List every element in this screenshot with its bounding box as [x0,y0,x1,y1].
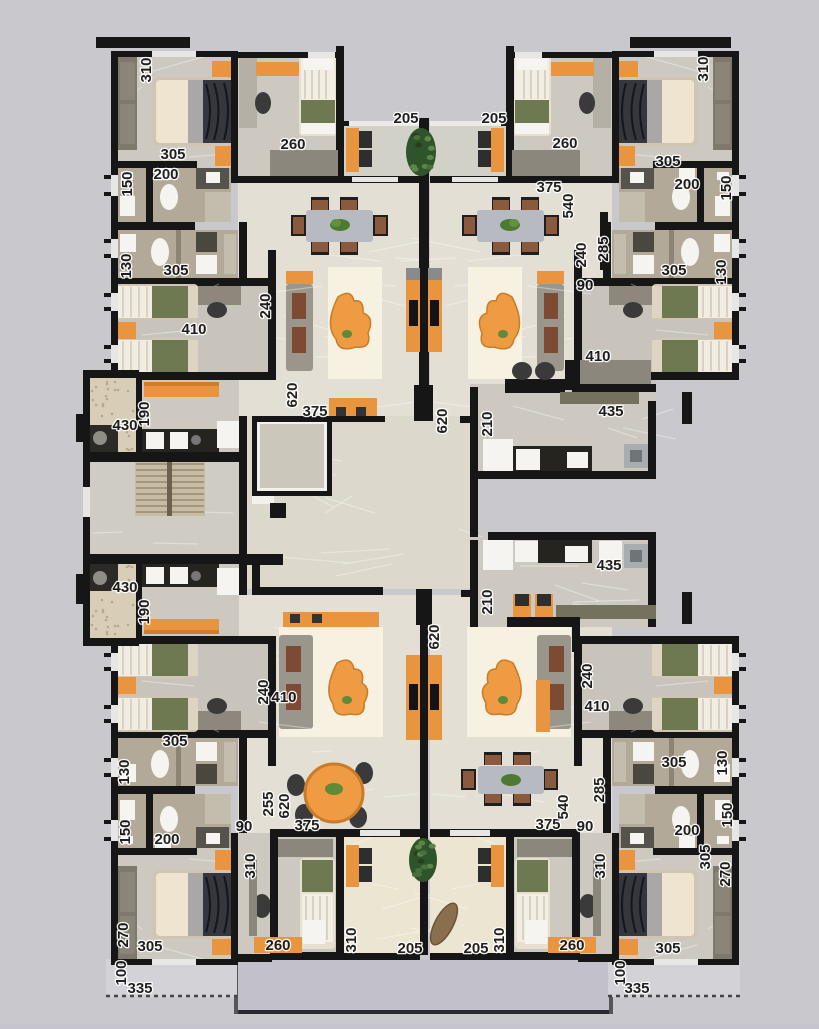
svg-text:150: 150 [719,802,736,827]
svg-text:305: 305 [655,153,680,170]
svg-text:310: 310 [343,927,360,952]
svg-text:305: 305 [160,146,185,163]
svg-text:200: 200 [154,831,179,848]
svg-text:305: 305 [661,754,686,771]
svg-text:270: 270 [115,922,132,947]
svg-text:240: 240 [257,293,274,318]
svg-text:435: 435 [598,403,623,420]
svg-text:305: 305 [661,262,686,279]
svg-text:200: 200 [674,176,699,193]
svg-text:410: 410 [271,689,296,706]
svg-text:430: 430 [112,579,137,596]
svg-text:375: 375 [302,403,327,420]
svg-text:130: 130 [118,253,135,278]
svg-text:90: 90 [236,818,253,835]
svg-text:310: 310 [138,57,155,82]
svg-text:335: 335 [624,980,649,997]
svg-text:255: 255 [260,791,277,816]
svg-text:375: 375 [294,817,319,834]
svg-text:540: 540 [555,794,572,819]
svg-text:205: 205 [397,940,422,957]
svg-text:285: 285 [595,236,612,261]
svg-text:435: 435 [596,557,621,574]
svg-text:620: 620 [434,408,451,433]
svg-text:310: 310 [491,927,508,952]
svg-text:210: 210 [479,411,496,436]
svg-text:270: 270 [717,861,734,886]
svg-text:410: 410 [584,698,609,715]
svg-text:260: 260 [280,136,305,153]
svg-text:240: 240 [573,242,590,267]
svg-text:305: 305 [697,844,714,869]
svg-text:130: 130 [116,759,133,784]
svg-text:310: 310 [592,853,609,878]
svg-text:540: 540 [560,193,577,218]
svg-text:205: 205 [481,110,506,127]
svg-text:310: 310 [695,56,712,81]
svg-text:190: 190 [136,401,153,426]
svg-text:150: 150 [119,171,136,196]
svg-text:305: 305 [137,938,162,955]
svg-text:210: 210 [479,589,496,614]
svg-text:375: 375 [536,179,561,196]
svg-text:620: 620 [284,382,301,407]
svg-text:260: 260 [552,135,577,152]
svg-text:130: 130 [714,750,731,775]
svg-text:150: 150 [117,819,134,844]
svg-text:305: 305 [162,733,187,750]
svg-text:240: 240 [255,679,272,704]
svg-text:205: 205 [463,940,488,957]
svg-text:150: 150 [718,175,735,200]
svg-text:200: 200 [674,822,699,839]
svg-text:620: 620 [276,793,293,818]
svg-text:260: 260 [265,937,290,954]
svg-text:90: 90 [577,818,594,835]
svg-text:190: 190 [136,599,153,624]
svg-text:260: 260 [559,937,584,954]
svg-text:410: 410 [585,348,610,365]
svg-text:335: 335 [127,980,152,997]
svg-text:205: 205 [393,110,418,127]
svg-text:310: 310 [242,853,259,878]
svg-text:305: 305 [655,940,680,957]
svg-text:285: 285 [591,777,608,802]
svg-text:240: 240 [579,663,596,688]
svg-text:620: 620 [426,624,443,649]
svg-text:305: 305 [163,262,188,279]
svg-text:200: 200 [153,166,178,183]
svg-text:90: 90 [577,277,594,294]
svg-text:410: 410 [181,321,206,338]
svg-text:430: 430 [112,417,137,434]
svg-text:130: 130 [713,259,730,284]
